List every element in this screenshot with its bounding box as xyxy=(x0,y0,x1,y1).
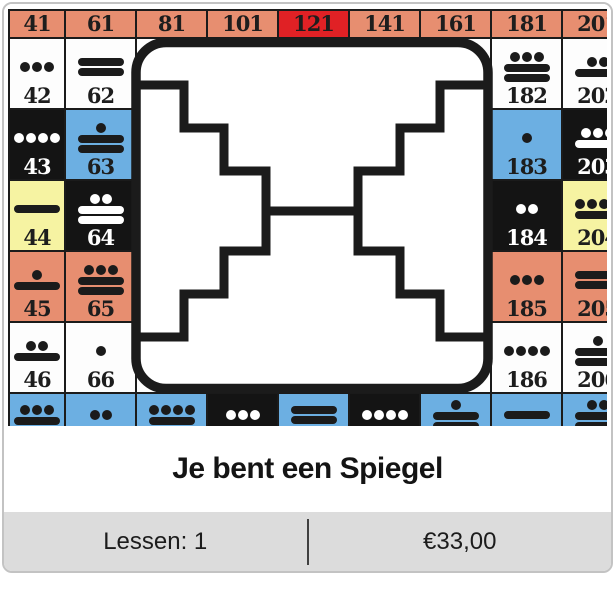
lessons-count: Lessen: 1 xyxy=(4,512,307,571)
mayan-tone-glyph xyxy=(78,265,124,295)
kin-number: 81 xyxy=(158,12,185,35)
kin-number: 121 xyxy=(293,12,334,35)
tzolkin-cell xyxy=(421,181,490,250)
tzolkin-header-cell: 41 xyxy=(10,11,64,37)
mayan-tone-glyph xyxy=(433,400,479,426)
kin-number: 64 xyxy=(66,226,135,249)
tzolkin-cell xyxy=(350,394,419,426)
tzolkin-cell xyxy=(421,252,490,321)
kin-number: 141 xyxy=(364,12,405,35)
tzolkin-cell: 66 xyxy=(66,323,135,392)
kin-number: 43 xyxy=(10,155,64,178)
tzolkin-cell xyxy=(350,323,419,392)
tzolkin-header-cell: 61 xyxy=(66,11,135,37)
kin-number: 101 xyxy=(222,12,263,35)
tzolkin-cell xyxy=(279,323,348,392)
tzolkin-cell: 184 xyxy=(492,181,561,250)
tzolkin-cell xyxy=(10,394,64,426)
kin-number: 201 xyxy=(577,12,607,35)
kin-number: 42 xyxy=(10,84,64,107)
tzolkin-header-cell: 201 xyxy=(563,11,607,37)
card-title: Je bent een Spiegel xyxy=(172,452,443,486)
mayan-tone-glyph xyxy=(14,270,60,290)
kin-number: 61 xyxy=(87,12,114,35)
tzolkin-cell xyxy=(279,394,348,426)
mayan-tone-glyph xyxy=(14,405,60,425)
mayan-tone-glyph xyxy=(362,410,408,420)
kin-number: 185 xyxy=(492,297,561,320)
tzolkin-header-cell: 121 xyxy=(279,11,348,37)
mayan-tone-glyph xyxy=(575,57,608,77)
tzolkin-cell: 185 xyxy=(492,252,561,321)
tzolkin-cell: 44 xyxy=(10,181,64,250)
tzolkin-cell xyxy=(208,252,277,321)
kin-number: 65 xyxy=(66,297,135,320)
tzolkin-header-cell: 81 xyxy=(137,11,206,37)
mayan-tone-glyph xyxy=(14,341,60,361)
tzolkin-cell: 65 xyxy=(66,252,135,321)
tzolkin-cell: 182 xyxy=(492,39,561,108)
mayan-tone-glyph xyxy=(78,58,124,76)
kin-number: 45 xyxy=(10,297,64,320)
mayan-tone-glyph xyxy=(522,133,532,143)
mayan-tone-glyph xyxy=(575,128,608,148)
kin-number: 203 xyxy=(563,155,607,178)
tzolkin-cell: 206 xyxy=(563,323,607,392)
kin-number: 181 xyxy=(506,12,547,35)
tzolkin-header-cell: 101 xyxy=(208,11,277,37)
tzolkin-cell xyxy=(137,323,206,392)
tzolkin-cell xyxy=(137,39,206,108)
kin-number: 186 xyxy=(492,368,561,391)
tzolkin-cell xyxy=(350,110,419,179)
mayan-tone-glyph xyxy=(96,346,106,356)
tzolkin-cell: 46 xyxy=(10,323,64,392)
tzolkin-cell xyxy=(137,181,206,250)
tzolkin-cell xyxy=(208,110,277,179)
price: €33,00 xyxy=(309,512,612,571)
tzolkin-cell: 43 xyxy=(10,110,64,179)
kin-number: 62 xyxy=(66,84,135,107)
mayan-tone-glyph xyxy=(149,405,195,425)
tzolkin-cell xyxy=(563,394,607,426)
mayan-tone-glyph xyxy=(504,411,550,419)
tzolkin-cell: 64 xyxy=(66,181,135,250)
product-card[interactable]: 4161811011211411611812014262182202436318… xyxy=(2,2,613,573)
tzolkin-cell: 63 xyxy=(66,110,135,179)
mayan-tone-glyph xyxy=(575,271,608,289)
tzolkin-cell: 205 xyxy=(563,252,607,321)
mayan-tone-glyph xyxy=(14,133,60,143)
tzolkin-cell xyxy=(66,394,135,426)
kin-number: 184 xyxy=(492,226,561,249)
tzolkin-cell xyxy=(421,394,490,426)
mayan-tone-glyph xyxy=(575,400,608,426)
tzolkin-cell xyxy=(421,323,490,392)
mayan-tone-glyph xyxy=(575,199,608,219)
tzolkin-header-cell: 161 xyxy=(421,11,490,37)
tzolkin-cell: 203 xyxy=(563,110,607,179)
kin-number: 205 xyxy=(563,297,607,320)
mayan-tone-glyph xyxy=(78,194,124,224)
tzolkin-cell xyxy=(137,394,206,426)
mayan-tone-glyph xyxy=(14,205,60,213)
tzolkin-cell: 42 xyxy=(10,39,64,108)
mayan-tone-glyph xyxy=(20,62,54,72)
tzolkin-cell xyxy=(208,394,277,426)
kin-number: 206 xyxy=(563,368,607,391)
mayan-tone-glyph xyxy=(504,52,550,82)
tzolkin-cell xyxy=(208,181,277,250)
tzolkin-cell: 186 xyxy=(492,323,561,392)
tzolkin-cell: 202 xyxy=(563,39,607,108)
kin-number: 41 xyxy=(23,12,50,35)
card-footer: Lessen: 1 €33,00 xyxy=(4,512,611,571)
kin-number: 183 xyxy=(492,155,561,178)
mayan-tone-glyph xyxy=(510,275,544,285)
mayan-tone-glyph xyxy=(504,346,550,356)
tzolkin-cell: 204 xyxy=(563,181,607,250)
tzolkin-cell xyxy=(279,181,348,250)
kin-number: 204 xyxy=(563,226,607,249)
kin-number: 182 xyxy=(492,84,561,107)
tzolkin-cell xyxy=(137,252,206,321)
tzolkin-cell xyxy=(279,39,348,108)
tzolkin-cell xyxy=(208,323,277,392)
mayan-tone-glyph xyxy=(90,410,112,420)
kin-number: 46 xyxy=(10,368,64,391)
tzolkin-image-area: 4161811011211411611812014262182202436318… xyxy=(4,4,611,426)
tzolkin-cell: 45 xyxy=(10,252,64,321)
mayan-tone-glyph xyxy=(78,123,124,153)
tzolkin-cell xyxy=(350,39,419,108)
tzolkin-cell xyxy=(279,110,348,179)
tzolkin-cell xyxy=(208,39,277,108)
kin-number: 66 xyxy=(66,368,135,391)
mayan-tone-glyph xyxy=(575,336,608,366)
tzolkin-cell xyxy=(350,252,419,321)
tzolkin-cell xyxy=(350,181,419,250)
mayan-tone-glyph xyxy=(226,410,260,420)
kin-number: 202 xyxy=(563,84,607,107)
card-title-area: Je bent een Spiegel xyxy=(4,426,611,512)
tzolkin-cell xyxy=(279,252,348,321)
tzolkin-header-cell: 141 xyxy=(350,11,419,37)
tzolkin-grid: 4161811011211411611812014262182202436318… xyxy=(8,9,607,426)
tzolkin-cell xyxy=(421,39,490,108)
tzolkin-cell: 183 xyxy=(492,110,561,179)
tzolkin-header-cell: 181 xyxy=(492,11,561,37)
kin-number: 44 xyxy=(10,226,64,249)
kin-number: 161 xyxy=(435,12,476,35)
tzolkin-cell: 62 xyxy=(66,39,135,108)
mayan-tone-glyph xyxy=(516,204,538,214)
tzolkin-cell xyxy=(492,394,561,426)
mayan-tone-glyph xyxy=(291,406,337,424)
kin-number: 63 xyxy=(66,155,135,178)
tzolkin-cell xyxy=(421,110,490,179)
tzolkin-cell xyxy=(137,110,206,179)
